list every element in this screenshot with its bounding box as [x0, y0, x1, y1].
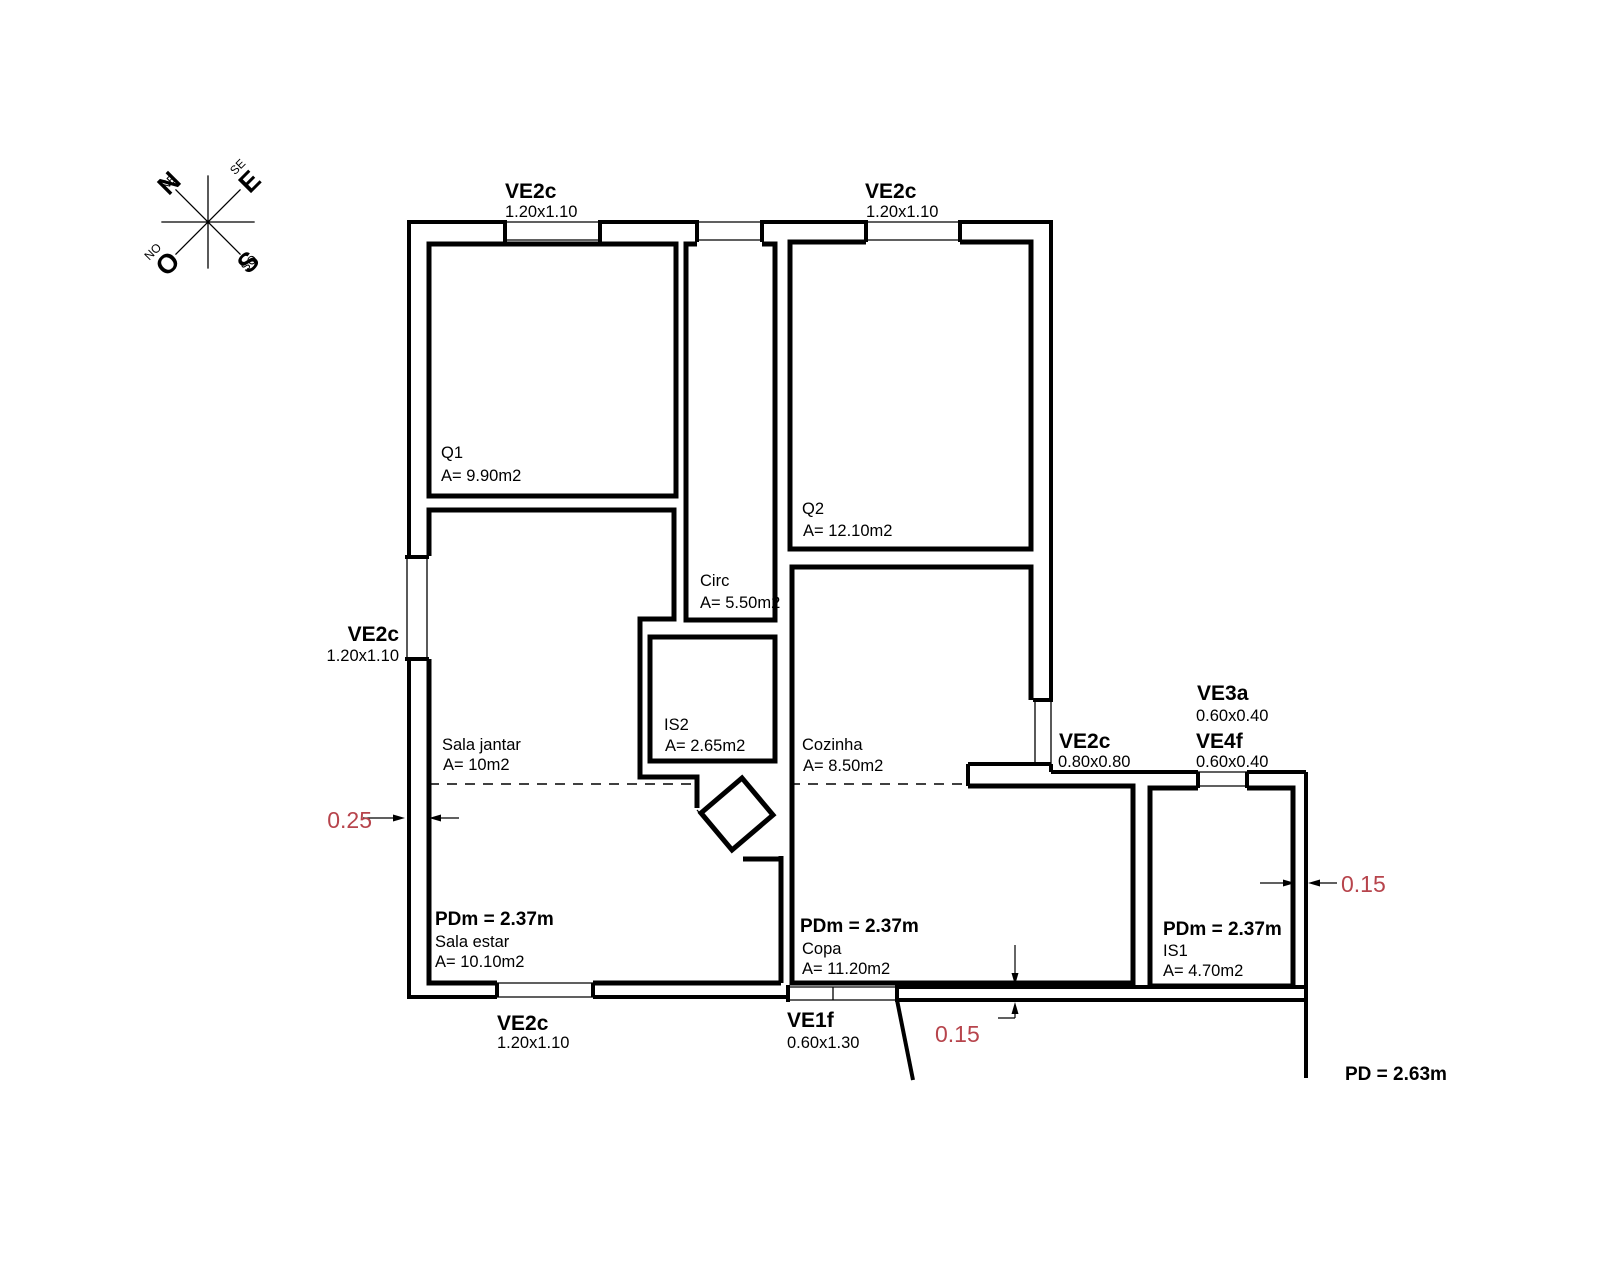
room-area-cozinha: A= 8.50m2	[803, 757, 883, 775]
room-label-q2: Q2	[802, 500, 824, 518]
glazing-ve4f	[1198, 772, 1247, 786]
dim-bottom-arrow-up	[1012, 1002, 1019, 1014]
entry-door-leaf	[897, 1000, 913, 1080]
room-label-is1: IS1	[1163, 942, 1188, 960]
dim-right-arrow-left	[1308, 880, 1320, 887]
room-area-sala-jantar: A= 10m2	[443, 756, 510, 774]
room-area-q1: A= 9.90m2	[441, 467, 521, 485]
room-label-copa: Copa	[802, 940, 842, 958]
ceiling-label-is1: PDm = 2.37m	[1163, 919, 1282, 940]
floor-plan-canvas: N E S O NE SE SO NO	[0, 0, 1600, 1280]
room-area-is2: A= 2.65m2	[665, 737, 745, 755]
window-label-top-right: VE2c	[865, 180, 917, 203]
room-area-is1: A= 4.70m2	[1163, 962, 1243, 980]
ceiling-label-sala-estar: PDm = 2.37m	[435, 909, 554, 930]
window-size-ve4f: 0.60x0.40	[1196, 753, 1268, 771]
room-area-q2: A= 12.10m2	[803, 522, 892, 540]
room-q1-walls	[429, 244, 676, 496]
glazing-left	[407, 557, 427, 659]
dimension-text-right: 0.15	[1341, 871, 1386, 897]
room-area-copa: A= 11.20m2	[802, 960, 890, 978]
room-label-is2: IS2	[664, 716, 689, 734]
window-size-ve3a: 0.60x0.40	[1196, 707, 1268, 725]
interior-door-leaf	[701, 778, 773, 850]
room-label-cozinha: Cozinha	[802, 736, 863, 754]
room-circ-walls	[686, 244, 775, 620]
dimension-text-bottom: 0.15	[935, 1021, 980, 1047]
compass-rose: N E S O NE SE SO NO	[110, 124, 307, 321]
room-label-q1: Q1	[441, 444, 463, 462]
window-size-right: 0.80x0.80	[1058, 753, 1130, 771]
window-label-bottom: VE2c	[497, 1012, 549, 1035]
room-q2-walls	[790, 242, 1031, 549]
room-area-sala-estar: A= 10.10m2	[435, 953, 524, 971]
window-label-left: VE2c	[348, 623, 400, 646]
glazing-right	[1035, 700, 1051, 764]
dimension-text-left: 0.25	[327, 807, 372, 833]
window-label-ve3a: VE3a	[1197, 682, 1249, 705]
room-walls	[429, 242, 1293, 986]
window-size-top-left: 1.20x1.10	[505, 203, 577, 221]
window-label-ve4f: VE4f	[1196, 730, 1244, 753]
room-labels: Q1 A= 9.90m2 Q2 A= 12.10m2 Circ A= 5.50m…	[435, 444, 1282, 980]
window-size-ve1f: 0.60x1.30	[787, 1034, 859, 1052]
window-glazing-lines	[407, 222, 1247, 1000]
dim-left-arrow-right	[393, 815, 405, 822]
ceiling-height-pd-label: PD = 2.63m	[1345, 1064, 1447, 1085]
glazing-top	[505, 222, 960, 240]
window-size-left: 1.20x1.10	[327, 647, 399, 665]
room-label-sala-estar: Sala estar	[435, 933, 510, 951]
window-label-right: VE2c	[1059, 730, 1111, 753]
room-label-sala-jantar: Sala jantar	[442, 736, 521, 754]
floor-plan-drawing: N E S O NE SE SO NO	[0, 0, 1600, 1280]
window-size-bottom: 1.20x1.10	[497, 1034, 569, 1052]
window-label-top-left: VE2c	[505, 180, 557, 203]
ceiling-label-copa: PDm = 2.37m	[800, 916, 919, 937]
window-jambs	[405, 220, 1247, 1002]
exterior-bottom-wall-right	[897, 987, 1306, 1000]
window-size-top-right: 1.20x1.10	[866, 203, 938, 221]
window-label-ve1f: VE1f	[787, 1009, 835, 1032]
room-area-circ: A= 5.50m2	[700, 594, 780, 612]
room-label-circ: Circ	[700, 572, 729, 590]
